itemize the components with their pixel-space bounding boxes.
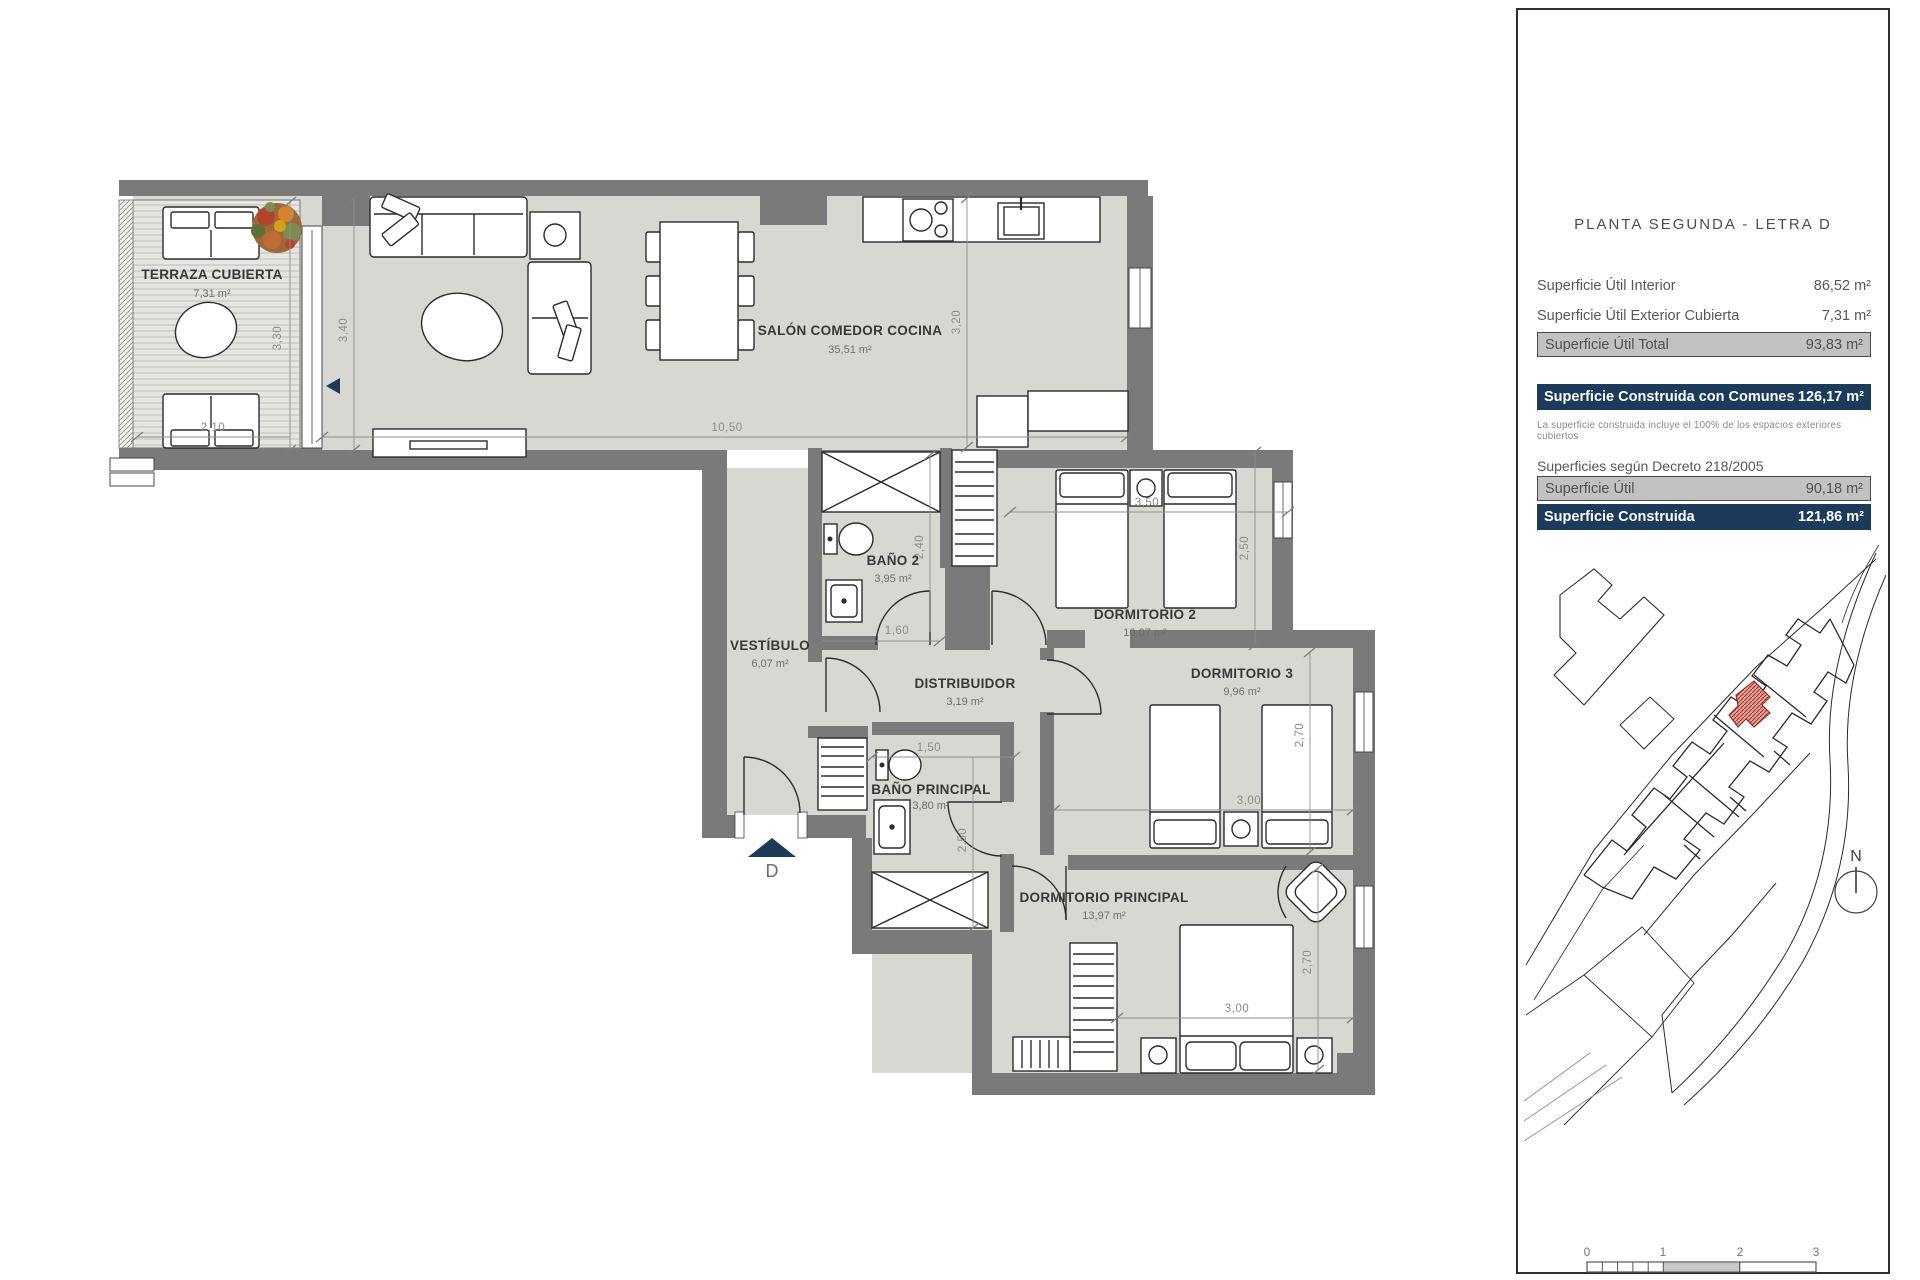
dimension-label: 1,60 [885, 625, 909, 637]
room-area: 10,07 m² [1123, 627, 1167, 639]
scale-number: 3 [1813, 1245, 1820, 1259]
entrance-marker-icon [748, 838, 796, 857]
surface-row-value: 86,52 m² [1814, 278, 1871, 294]
shower [872, 872, 988, 928]
room-area: 7,31 m² [193, 288, 231, 300]
decree-row-value: 90,18 m² [1806, 481, 1863, 497]
shower [822, 452, 940, 512]
room-label: TERRAZA CUBIERTA [141, 267, 282, 282]
room-area: 9,96 m² [1223, 686, 1261, 698]
dimension-label: 2,70 [1294, 723, 1306, 747]
wardrobe [1070, 943, 1117, 1071]
sofa [370, 193, 527, 257]
surface-row-label: Superficie Útil Exterior Cubierta [1537, 308, 1739, 324]
room-area: 3,95 m² [874, 573, 912, 585]
surface-total-label: Superficie Útil Total [1545, 337, 1669, 353]
site-boundary [1526, 559, 1876, 965]
side-table [530, 212, 580, 259]
dining-table-set [646, 222, 754, 360]
dimension-label: 3,00 [1225, 1003, 1249, 1015]
decree-row-label: Superficie Construida [1544, 509, 1695, 525]
room-area: 13,97 m² [1082, 910, 1126, 922]
decree-row-value: 121,86 m² [1798, 509, 1864, 525]
north-label: N [1850, 848, 1862, 865]
room-area: 35,51 m² [828, 344, 872, 356]
tv-cabinet [373, 429, 526, 457]
dimension-label: 2,70 [1302, 950, 1314, 974]
surface-row: Superficie Útil Interior 86,52 m² [1537, 276, 1871, 296]
decree-row: Superficie Útil 90,18 m² [1537, 476, 1871, 501]
surface-row-value: 7,31 m² [1822, 308, 1871, 324]
wardrobe [818, 738, 867, 810]
room-label: DORMITORIO 3 [1191, 666, 1294, 681]
dimension-label: 3,00 [1237, 795, 1261, 807]
bed [1056, 470, 1128, 608]
dimension-label: 2,50 [1239, 536, 1251, 560]
scale-number: 1 [1660, 1245, 1667, 1259]
decree-row: Superficie Construida 121,86 m² [1537, 504, 1871, 530]
room-label: BAÑO PRINCIPAL [871, 782, 990, 797]
dimension-label: 3,40 [338, 318, 350, 342]
wardrobe [952, 450, 997, 566]
built-surface-label: Superficie Construida con Comunes [1544, 389, 1795, 405]
room-label: DISTRIBUIDOR [914, 676, 1015, 691]
room-label: DORMITORIO PRINCIPAL [1019, 890, 1188, 905]
surface-row: Superficie Útil Exterior Cubierta 7,31 m… [1537, 306, 1871, 326]
dimension-label: 2,50 [957, 828, 969, 852]
radiator [1013, 1037, 1070, 1071]
kitchen-counter [863, 197, 1100, 242]
built-surface-value: 126,17 m² [1798, 389, 1864, 405]
built-surface-note: La superficie construida incluye el 100%… [1537, 420, 1873, 442]
toilet [876, 750, 921, 780]
room-label: VESTÍBULO [730, 638, 810, 653]
exterior-ledge [110, 473, 154, 486]
floorplan-sheet: 3,30 3,40 3,20 2,10 10,50 3,50 2,50 2,40… [0, 0, 1920, 1280]
terrace-sofa [163, 207, 259, 259]
nightstand [1224, 812, 1258, 846]
sheet-title: PLANTA SEGUNDA - LETRA D [1518, 216, 1888, 233]
room-label: BAÑO 2 [867, 553, 920, 568]
room-area: 3,80 m² [912, 800, 950, 812]
surface-row-label: Superficie Útil Interior [1537, 278, 1676, 294]
toilet [824, 523, 873, 555]
entrance-letter: D [766, 861, 779, 881]
dimension-label: 3,20 [951, 310, 963, 334]
exterior-ledge [110, 458, 154, 471]
site-plan: N 0 1 2 3 [1524, 545, 1886, 1278]
room-area: 6,07 m² [751, 658, 789, 670]
dimension-label: 3,50 [1135, 497, 1159, 509]
scale-number: 0 [1584, 1245, 1591, 1259]
road-curve [1672, 553, 1876, 1093]
room-area: 3,19 m² [946, 696, 984, 708]
dimension-label: 1,50 [917, 742, 941, 754]
nightstand [1297, 1038, 1332, 1073]
bed [1180, 925, 1293, 1073]
terrace-sofa [163, 394, 259, 448]
dimension-label: 3,30 [272, 326, 284, 350]
built-surface-row: Superficie Construida con Comunes 126,17… [1537, 384, 1871, 410]
surface-total-value: 93,83 m² [1806, 337, 1863, 353]
surface-total-row: Superficie Útil Total 93,83 m² [1537, 332, 1871, 357]
decree-row-label: Superficie Útil [1545, 481, 1634, 497]
bathroom-sink [874, 800, 910, 854]
bed [1164, 470, 1236, 608]
dimension-label: 2,10 [201, 422, 225, 434]
dimension-label: 10,50 [711, 422, 742, 434]
room-label: DORMITORIO 2 [1094, 607, 1196, 622]
scale-number: 2 [1737, 1245, 1744, 1259]
road-curve [1684, 575, 1886, 1105]
decree-heading: Superficies según Decreto 218/2005 [1537, 458, 1873, 474]
info-panel: PLANTA SEGUNDA - LETRA D Superficie Útil… [1516, 8, 1890, 1274]
scale-bar: 0 1 2 3 [1584, 1245, 1820, 1272]
sofa [528, 262, 591, 374]
bed [1150, 705, 1220, 848]
building-cluster [1554, 569, 1854, 1093]
terrace-edge [119, 200, 133, 448]
site-plan-highlighted-unit [1729, 681, 1770, 727]
bathroom-sink [826, 580, 862, 622]
nightstand [1141, 1038, 1176, 1073]
room-label: SALÓN COMEDOR COCINA [758, 323, 943, 338]
